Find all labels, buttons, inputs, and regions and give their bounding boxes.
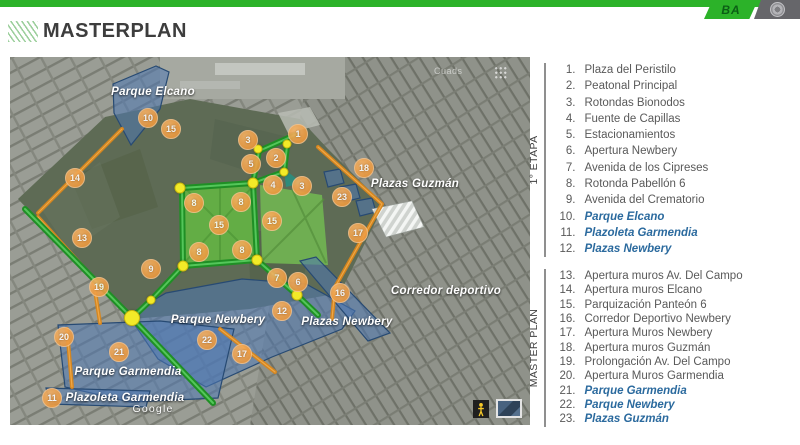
legend-item: 17.Apertura Muros Newbery — [550, 327, 799, 340]
map-area-label: Plazas Newbery — [301, 316, 392, 328]
map-area-label: Parque Garmendia — [74, 366, 181, 378]
legend-item: 1.Plaza del Peristilo — [550, 64, 799, 77]
slide: { "header": { "title": "MASTERPLAN", "lo… — [0, 0, 800, 445]
legend-item: 4.Fuente de Capillas — [550, 113, 799, 126]
legend-item: 19.Prolongación Av. Del Campo — [550, 356, 799, 369]
ba-logo-text: BA — [721, 3, 740, 17]
legend-item: 12.Plazas Newbery — [550, 243, 799, 256]
logo-gray-block — [754, 0, 800, 19]
legend-stage-label: MASTER PLAN — [528, 309, 540, 388]
map-area-label: Parque Elcano — [111, 86, 195, 98]
map-toolbar-text: Cuads — [434, 66, 463, 76]
page-title: MASTERPLAN — [43, 20, 187, 43]
map: 1235431510141388151588919182317761612221… — [10, 57, 530, 425]
top-accent-bar — [0, 0, 800, 7]
legend-item: 5.Estacionamientos — [550, 129, 799, 142]
legend-stage-label: 1° ETAPA — [528, 135, 540, 184]
ba-logo: BA — [704, 0, 758, 19]
legend-divider — [544, 63, 546, 257]
legend-item: 23.Plazas Guzmán — [550, 413, 799, 426]
pegman-icon[interactable] — [473, 400, 489, 418]
legend-item: 3.Rotondas Bionodos — [550, 97, 799, 110]
map-area-label: Corredor deportivo — [391, 285, 501, 297]
legend-item: 22.Parque Newbery — [550, 399, 799, 412]
legend-item: 10.Parque Elcano — [550, 211, 799, 224]
legend-item: 20.Apertura Muros Garmendia — [550, 370, 799, 383]
legend-section-masterplan: MASTER PLAN 13.Apertura muros Av. Del Ca… — [524, 269, 798, 427]
legend-item: 14.Apertura muros Elcano — [550, 284, 799, 297]
legend-item: 11.Plazoleta Garmendia — [550, 227, 799, 240]
legend-section-etapa: 1° ETAPA 1.Plaza del Peristilo2.Peatonal… — [524, 63, 798, 257]
title-hatch-decoration — [8, 21, 38, 42]
labels-layer: Parque ElcanoPlazas GuzmánCorredor depor… — [10, 57, 530, 425]
legend-item: 8.Rotonda Pabellón 6 — [550, 178, 799, 191]
imagery-thumbnail[interactable] — [496, 399, 522, 418]
legend-item: 18.Apertura muros Guzmán — [550, 342, 799, 355]
legend-item: 9.Avenida del Crematorio — [550, 194, 799, 207]
legend-item: 15.Parquización Panteón 6 — [550, 299, 799, 312]
map-area-label: Plazas Guzmán — [371, 178, 459, 190]
legend-item: 7.Avenida de los Cipreses — [550, 162, 799, 175]
legend-item: 6.Apertura Newbery — [550, 145, 799, 158]
city-seal-icon — [770, 2, 785, 17]
legend-item: 16.Corredor Deportivo Newbery — [550, 313, 799, 326]
grid-icon[interactable] — [494, 66, 507, 79]
map-attribution: Google — [132, 403, 173, 415]
legend-item: 13.Apertura muros Av. Del Campo — [550, 270, 799, 283]
map-area-label: Parque Newbery — [171, 314, 265, 326]
legend-rows: 1.Plaza del Peristilo2.Peatonal Principa… — [550, 63, 799, 257]
legend-item: 2.Peatonal Principal — [550, 80, 799, 93]
legend-divider — [544, 269, 546, 427]
legend-item: 21.Parque Garmendia — [550, 385, 799, 398]
legend-rows: 13.Apertura muros Av. Del Campo14.Apertu… — [550, 269, 799, 427]
